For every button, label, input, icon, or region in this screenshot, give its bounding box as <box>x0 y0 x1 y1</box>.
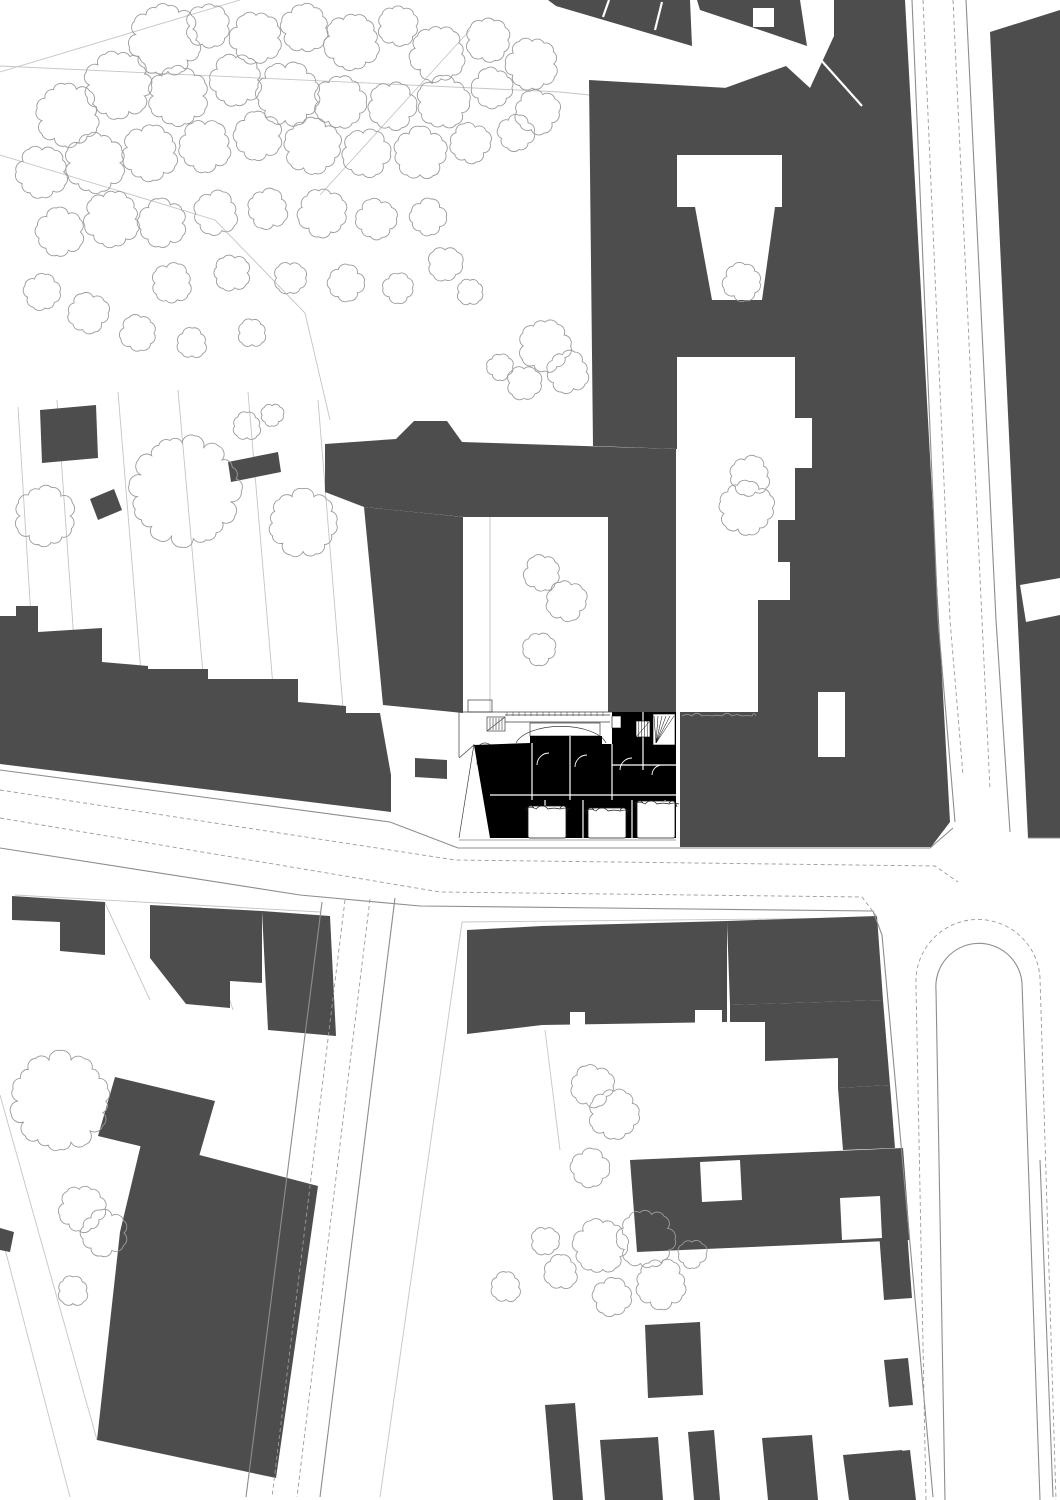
courtyard-south-notch-4 <box>840 1196 882 1240</box>
tree-icon <box>84 51 152 119</box>
tree-icon <box>572 1219 628 1273</box>
tree-icon <box>15 146 67 198</box>
tree-icon <box>23 273 60 310</box>
tree-icon <box>65 132 124 193</box>
tree-icon <box>297 189 347 238</box>
tree-icon <box>570 1148 610 1188</box>
parcel-line <box>545 1030 560 1150</box>
building-mass-south-mid-house <box>645 1322 703 1398</box>
tree-icon <box>342 129 391 178</box>
courtyard-ne-notch-south <box>818 692 845 757</box>
building-mass-south-block-d <box>730 1000 890 1088</box>
tree-icon <box>523 633 556 665</box>
tree-icon <box>122 125 178 182</box>
building-mass-top-block-b <box>697 0 807 46</box>
tree-icon <box>487 354 514 380</box>
tree-icon <box>532 1228 560 1255</box>
tree-icon <box>10 1050 109 1150</box>
tree-icon <box>179 121 231 173</box>
parcel-line <box>0 1230 70 1497</box>
courtyard-south-notch-2 <box>695 1010 722 1025</box>
tree-icon <box>255 62 319 126</box>
tree-icon <box>589 1089 639 1139</box>
building-mass-south-block-e <box>838 1085 895 1150</box>
plan-rect <box>468 700 492 712</box>
plan-rect <box>530 723 600 736</box>
tree-icon <box>58 1276 87 1305</box>
building-mass-west-row-annex <box>415 758 447 779</box>
building-mass-south-block-a <box>467 926 542 1034</box>
site-plan-drawing <box>0 0 1060 1500</box>
tree-icon <box>417 75 470 128</box>
tree-icon <box>261 404 284 426</box>
tree-icon <box>383 273 414 304</box>
building-mass-south-block-c <box>727 916 883 1005</box>
building-mass-garden-house <box>40 405 98 463</box>
tree-icon <box>269 488 337 556</box>
tree-icon <box>209 54 261 106</box>
tree-icon <box>450 122 492 163</box>
tree-icon <box>214 255 250 291</box>
building-mass-south-row-4 <box>762 1435 818 1500</box>
building-mass-central-south-bar <box>608 517 676 712</box>
balcony-bay <box>588 808 626 838</box>
tree-icon <box>323 14 379 70</box>
tree-icon <box>129 435 243 548</box>
parcel-line <box>0 0 240 72</box>
tree-icon <box>275 263 307 294</box>
building-mass-south-row-3 <box>688 1430 720 1500</box>
plan-line <box>459 744 474 838</box>
street-lane-turning-loop-outer <box>916 919 1056 1500</box>
tree-icon <box>284 117 341 174</box>
building-mass-southwest-row-2 <box>150 905 262 1008</box>
tree-icon <box>233 111 282 160</box>
tree-icon <box>519 320 571 372</box>
tree-icon <box>378 6 418 46</box>
tree-icon <box>238 319 265 346</box>
tree-icon <box>394 126 447 178</box>
building-mass-garden-bar <box>228 452 281 482</box>
tree-icon <box>515 90 561 135</box>
parcel-line <box>0 155 330 420</box>
parcel-line <box>380 922 462 1497</box>
tree-icon <box>491 1272 520 1302</box>
parcel-line <box>105 903 150 1000</box>
street-edge-turning-loop-inner <box>936 943 1040 1500</box>
tree-icon <box>137 198 185 247</box>
building-mass-southwest-row-1 <box>12 896 105 955</box>
tree-icon <box>368 82 417 131</box>
tree-icon <box>457 279 482 304</box>
tree-icon <box>546 581 587 622</box>
balcony-bay <box>637 801 675 838</box>
courtyard-east-strip-notch <box>1020 578 1060 622</box>
building-mass-garden-shed <box>90 489 122 520</box>
balcony-bay <box>528 806 566 838</box>
tree-icon <box>523 555 559 592</box>
tree-icon <box>233 412 260 440</box>
building-mass-southwest-row-3 <box>262 911 336 1036</box>
tree-icon <box>84 191 140 247</box>
courtyard-ne-notch-top <box>753 8 774 27</box>
building-mass-south-block-b <box>542 921 727 1025</box>
building-mass-south-row-1 <box>545 1403 583 1500</box>
tree-icon <box>428 248 463 281</box>
tree-icon <box>356 198 398 240</box>
tree-icon <box>544 1255 577 1289</box>
tree-icon <box>409 27 465 83</box>
building-mass-top-band <box>548 0 692 46</box>
tree-icon <box>194 190 238 235</box>
building-mass-south-edge-2 <box>884 1358 913 1407</box>
tree-icon <box>187 4 230 48</box>
project-building-plan <box>459 700 679 840</box>
building-mass-south-row-2 <box>600 1437 663 1500</box>
site-plan-canvas <box>0 0 1060 1500</box>
tree-icon <box>152 263 191 303</box>
tree-icon <box>409 198 446 236</box>
building-mass-central-west-wing <box>364 507 463 713</box>
tree-icon <box>119 314 155 351</box>
tree-icon <box>36 83 99 147</box>
tree-icon <box>248 188 288 229</box>
tree-icon <box>592 1278 631 1317</box>
building-mass-northeast-step <box>754 712 774 738</box>
building-mass-east-strip <box>990 10 1060 838</box>
courtyard-south-notch-3 <box>700 1160 742 1202</box>
tree-icon <box>327 264 364 302</box>
building-mass-west-row <box>0 606 391 812</box>
tree-icon <box>466 18 509 62</box>
tree-icon <box>280 3 328 51</box>
building-mass-southwest-sliver <box>0 1228 14 1252</box>
elevator-box <box>612 716 621 728</box>
tree-icon <box>68 292 110 333</box>
courtyard-south-notch-1 <box>570 1012 585 1027</box>
parcel-line <box>320 30 470 195</box>
tree-icon <box>35 207 84 256</box>
courtyard-ne-court-1 <box>677 155 782 207</box>
tree-icon <box>177 328 206 358</box>
